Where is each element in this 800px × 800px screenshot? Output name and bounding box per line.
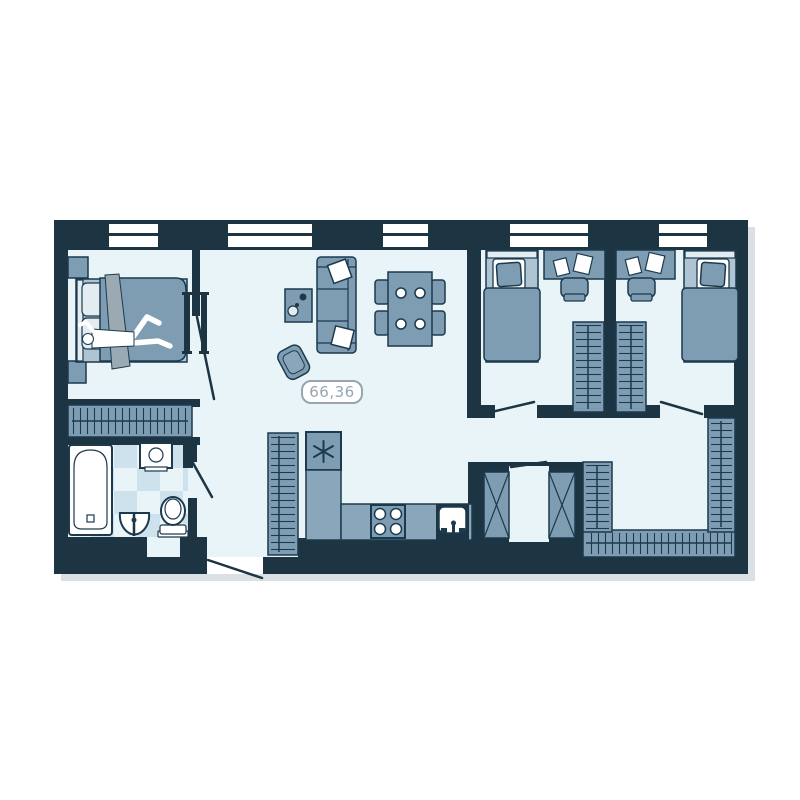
bathroom [68, 443, 188, 537]
single-bed [484, 250, 540, 362]
papers [645, 252, 665, 273]
shaft-niche [484, 466, 575, 542]
window [109, 224, 158, 247]
wall-kitchen-bottom [298, 538, 478, 558]
toilet [158, 497, 188, 537]
niche-floor [509, 466, 549, 542]
headboard [487, 251, 537, 258]
area-label-text: 66,36 [309, 383, 354, 401]
area-label: 66,36 [301, 380, 363, 404]
wall-living-bedroomA [467, 250, 481, 418]
desk-chair [628, 278, 655, 301]
plant-icon [300, 294, 307, 301]
chair [375, 280, 389, 304]
wall-bath-right-bottom [188, 498, 197, 538]
burner [375, 509, 386, 520]
desk-chair [561, 278, 588, 301]
counter-vertical [306, 470, 341, 540]
chair [431, 311, 445, 335]
single-bed [682, 250, 738, 362]
window [510, 224, 588, 247]
dining-table [388, 272, 432, 346]
double-bed [76, 274, 187, 369]
wall-below-bath [54, 537, 207, 557]
nightstand [68, 257, 88, 278]
burner [391, 524, 402, 535]
blanket [484, 288, 540, 361]
window [383, 224, 428, 247]
plate [415, 319, 425, 329]
wall-bedroomA-bedroomB [604, 250, 616, 412]
coffee-table [285, 289, 312, 322]
burner [375, 524, 386, 535]
floorplan-svg [0, 0, 800, 800]
kitchen-sink [436, 504, 469, 540]
hanger-hatch [271, 436, 295, 552]
pillow [331, 326, 354, 349]
wall-bedrooms-bottom-right [704, 405, 734, 418]
bathtub [69, 445, 112, 535]
tv-bedroom [184, 294, 190, 352]
refrigerator [306, 432, 341, 470]
blanket [682, 288, 738, 361]
entrance-opening [207, 557, 263, 574]
sofa [317, 257, 356, 353]
headboard [685, 251, 735, 258]
plate [396, 319, 406, 329]
wall-master-right [192, 250, 200, 316]
wall-bath-right-top [188, 445, 197, 462]
desk [544, 250, 605, 279]
duct-left [484, 472, 509, 538]
nightstand [68, 361, 86, 383]
kitchen-wardrobe [268, 433, 298, 555]
wardrobe [616, 322, 646, 412]
chair [375, 311, 389, 335]
desk [616, 250, 675, 279]
floorplan-canvas: 66,36 [0, 0, 800, 800]
plate [415, 288, 425, 298]
papers [573, 253, 593, 274]
wardrobe [573, 322, 604, 412]
master-closet [68, 405, 192, 437]
washing-machine [140, 443, 172, 471]
hall-notch [147, 537, 180, 557]
chair [431, 280, 445, 304]
decor [288, 306, 298, 316]
plate [396, 288, 406, 298]
burner [391, 509, 402, 520]
window [228, 224, 312, 247]
stove [371, 505, 405, 538]
duct-right [549, 472, 575, 538]
window [659, 224, 707, 247]
